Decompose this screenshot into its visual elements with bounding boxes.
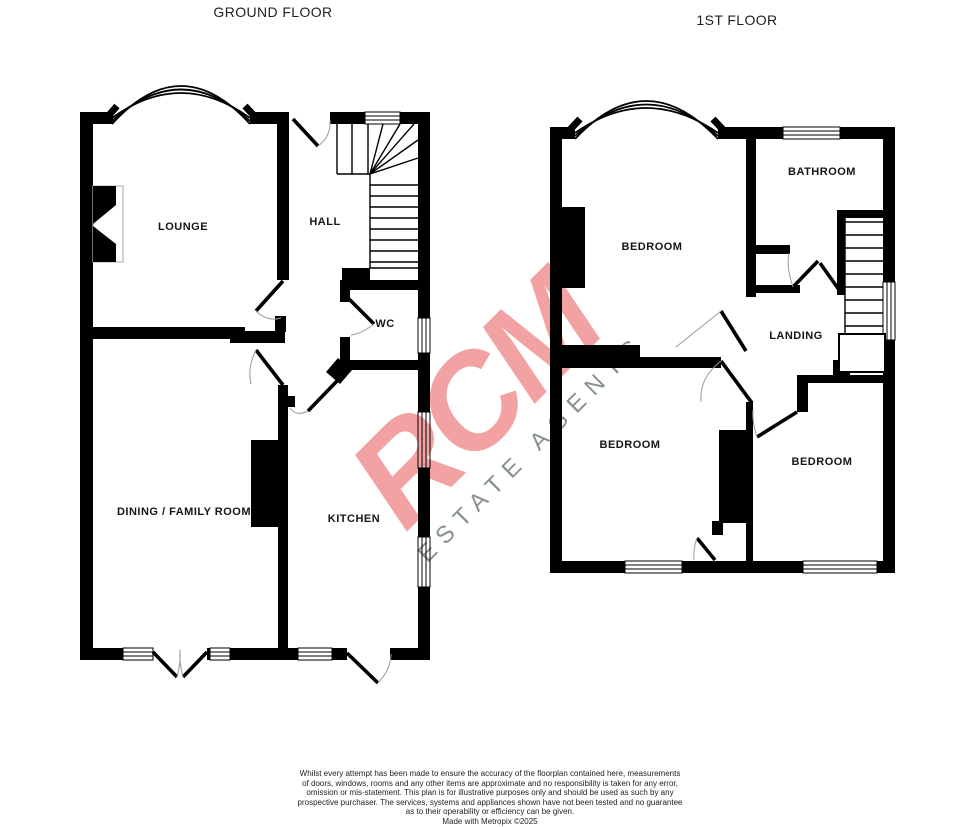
- room-label-kitchen: KITCHEN: [328, 513, 380, 525]
- floorplan-page: GROUND FLOOR 1ST FLOOR LOUNGE HALL WC DI…: [0, 0, 980, 819]
- room-label-wc: WC: [375, 318, 394, 330]
- room-label-bedroom-back-right: BEDROOM: [792, 456, 853, 468]
- disclaimer-line: Whilst every attempt has been made to en…: [0, 769, 980, 779]
- metropix-credit: Made with Metropix ©2025: [0, 817, 980, 827]
- windows-ground: [123, 112, 430, 660]
- doors-first: [676, 253, 842, 560]
- stair-rail: [839, 334, 885, 372]
- room-label-bedroom-back-left: BEDROOM: [600, 439, 661, 451]
- ground-floor-title: GROUND FLOOR: [213, 4, 332, 20]
- doors-ground: [153, 119, 391, 683]
- ground-floor-walls: [80, 112, 430, 660]
- disclaimer-line: of doors, windows, rooms and any other i…: [0, 779, 980, 789]
- fireplace-icon: [93, 186, 123, 262]
- floorplan-drawing: [0, 0, 980, 819]
- room-label-bedroom-front: BEDROOM: [622, 241, 683, 253]
- first-floor-title: 1ST FLOOR: [696, 12, 777, 28]
- stairs-first: [845, 218, 883, 333]
- room-label-lounge: LOUNGE: [158, 221, 208, 233]
- disclaimer-line: prospective purchaser. The services, sys…: [0, 798, 980, 808]
- bay-window-ground: [103, 86, 259, 124]
- disclaimer-text: Whilst every attempt has been made to en…: [0, 769, 980, 827]
- disclaimer-line: omission or mis-statement. This plan is …: [0, 788, 980, 798]
- ground-floor-plan: [80, 86, 430, 683]
- room-label-landing: LANDING: [769, 330, 823, 342]
- room-label-bathroom: BATHROOM: [788, 166, 856, 178]
- room-label-hall: HALL: [309, 216, 340, 228]
- stairs-ground: [337, 124, 418, 268]
- bay-window-first: [566, 101, 727, 139]
- room-label-dining-family-room: DINING / FAMILY ROOM: [117, 506, 251, 518]
- disclaimer-line: as to their operability or efficiency ca…: [0, 807, 980, 817]
